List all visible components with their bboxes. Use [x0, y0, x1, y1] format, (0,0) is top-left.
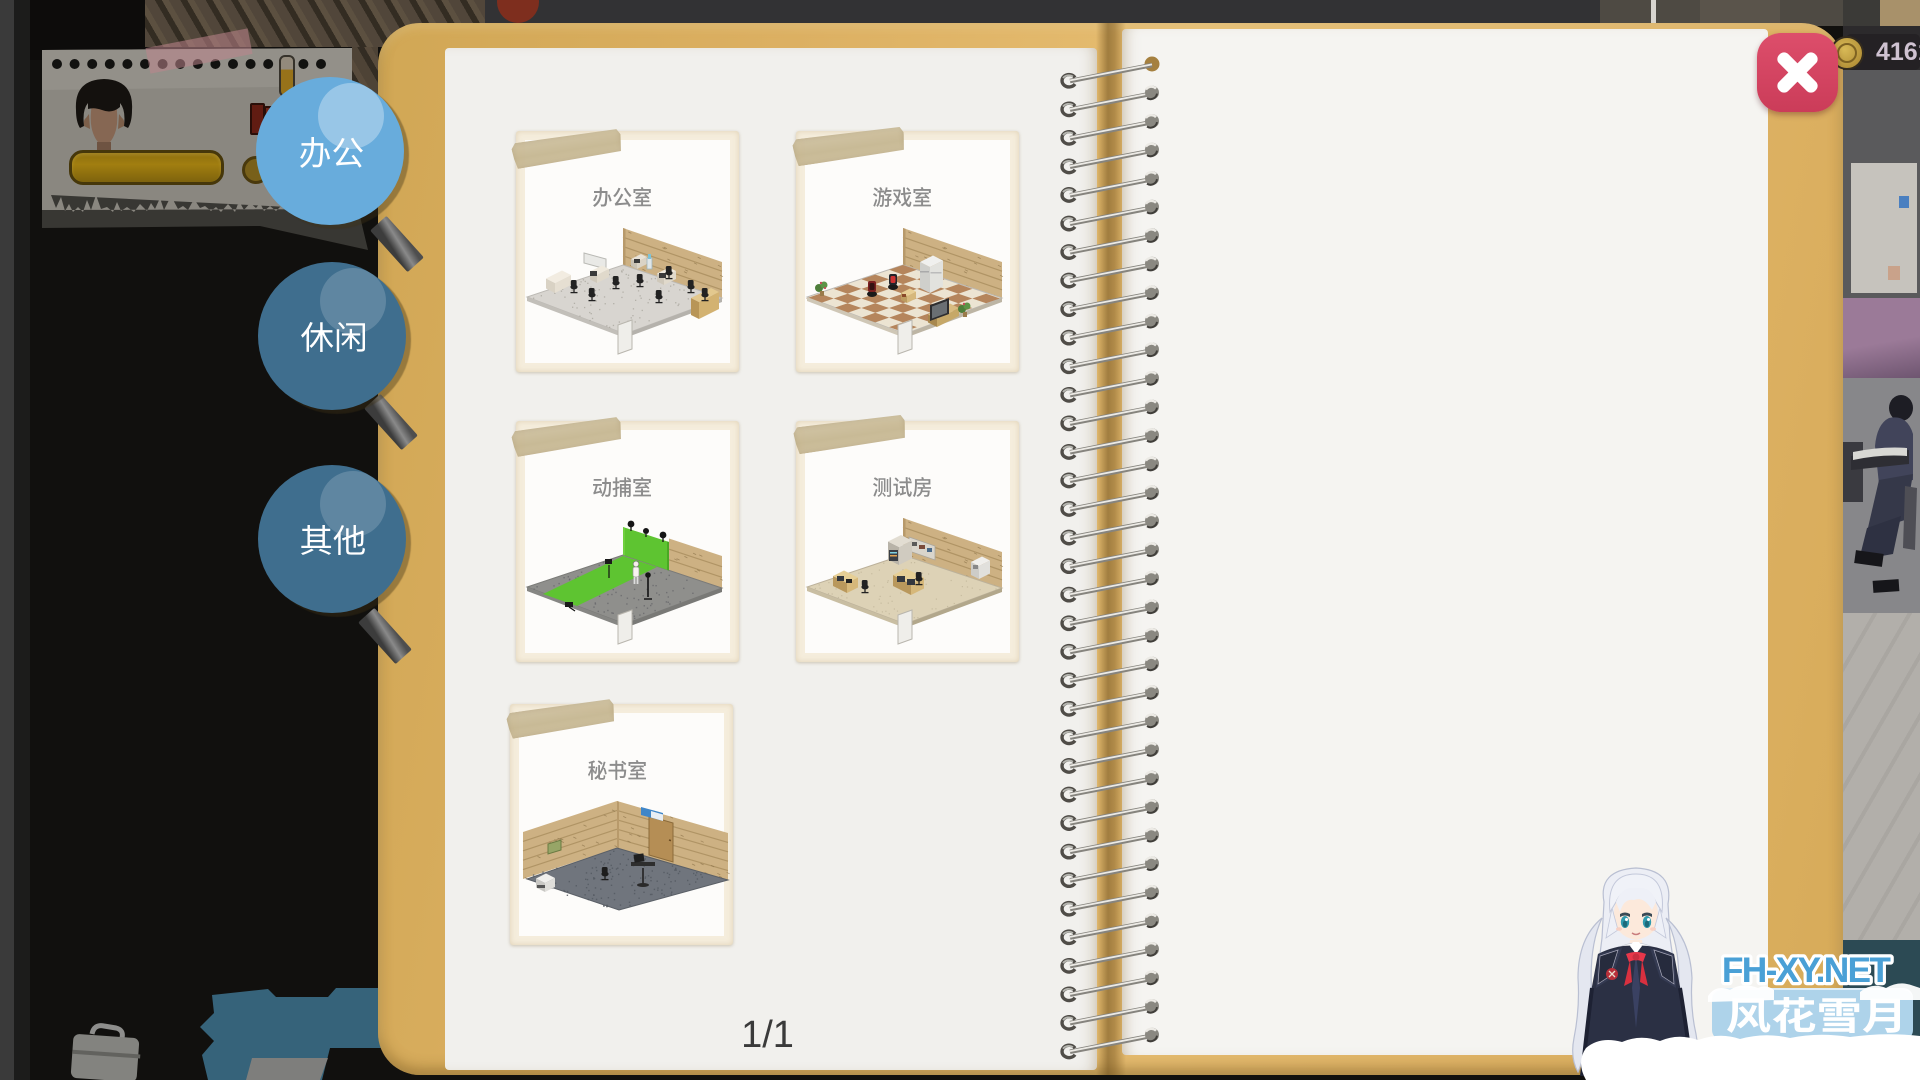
svg-text:FH-XY.NET: FH-XY.NET — [1722, 951, 1890, 990]
